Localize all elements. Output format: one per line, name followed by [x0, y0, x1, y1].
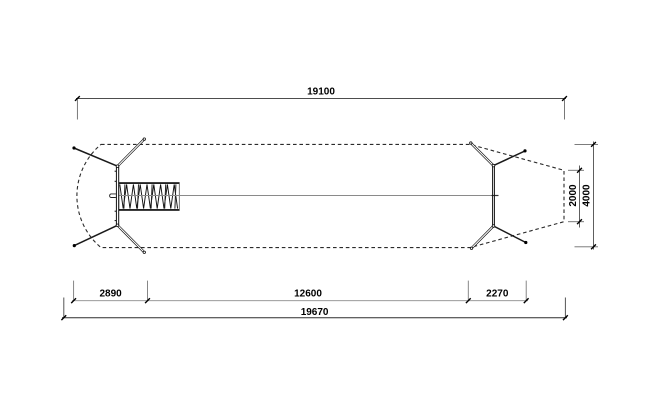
svg-text:4000: 4000 — [581, 184, 592, 207]
svg-text:2890: 2890 — [99, 289, 122, 300]
svg-text:2000: 2000 — [568, 184, 579, 207]
svg-text:19100: 19100 — [307, 87, 335, 98]
svg-text:12600: 12600 — [294, 289, 322, 300]
svg-text:19670: 19670 — [301, 307, 329, 318]
svg-text:2270: 2270 — [486, 289, 509, 300]
